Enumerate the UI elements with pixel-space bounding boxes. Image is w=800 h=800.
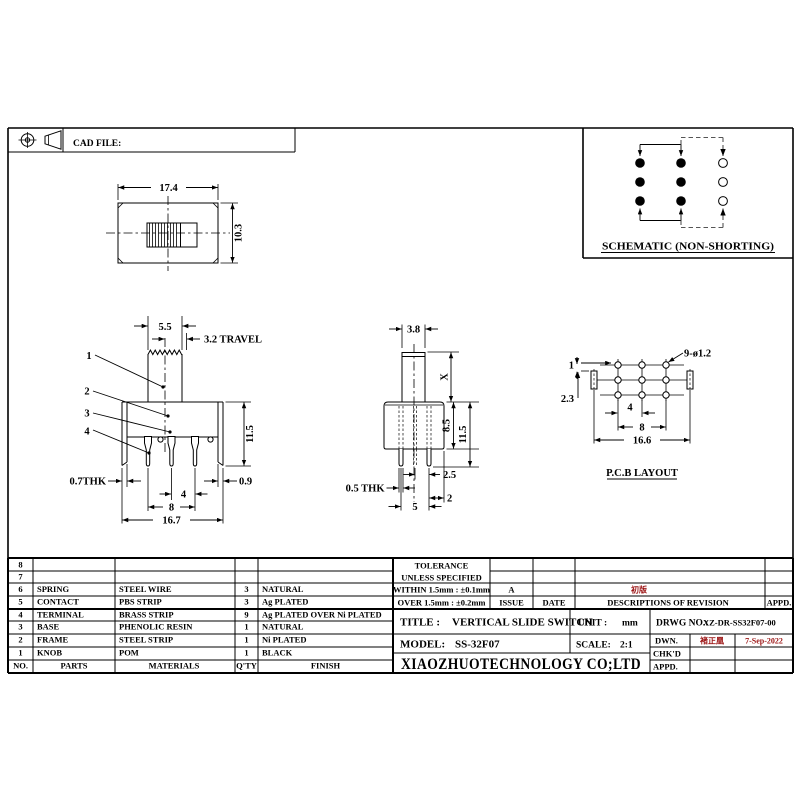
- pin-side: [399, 449, 403, 466]
- dim-knob-width: 5.5: [158, 322, 171, 333]
- col-header-qty: Q'TY: [236, 661, 257, 671]
- tolerance-block: TOLERANCE UNLESS SPECIFIED WITHIN 1.5mm …: [393, 561, 566, 608]
- terminal-pin: [192, 437, 199, 467]
- appd-label: APPD.: [653, 662, 678, 672]
- dim-travel: 3.2 TRAVEL: [204, 335, 262, 346]
- company-name: XIAOZHUOTECHNOLOGY CO;LTD: [401, 656, 641, 673]
- schematic-contacts: [635, 158, 727, 206]
- col-header-materials: MATERIALS: [149, 661, 200, 671]
- knob-side: [402, 352, 425, 402]
- drawing-canvas: CAD FILE: SCHEMATIC (NON-SHORT: [0, 0, 800, 800]
- row-material: BRASS STRIP: [119, 610, 174, 620]
- row-finish: NATURAL: [262, 622, 304, 632]
- issue-label: ISSUE: [499, 598, 524, 608]
- pin-side: [427, 449, 431, 466]
- tolerance-within: WITHIN 1.5mm : ±0.1mm: [393, 585, 490, 595]
- side-view: 3.8 X 8.5 11.5 2.5 0.5 THK 2 5: [346, 324, 479, 513]
- descriptions-of-revision-label: DESCRIPTIONS OF REVISION: [607, 598, 729, 608]
- row-qty: 1: [244, 635, 248, 645]
- dim-pcb-16-6: 16.6: [633, 435, 651, 446]
- model-label: MODEL:: [400, 639, 445, 651]
- row-part: TERMINAL: [37, 610, 84, 620]
- dim-pcb-4: 4: [627, 403, 633, 414]
- tolerance-subtitle: UNLESS SPECIFIED: [401, 573, 482, 583]
- model-value: SS-32F07: [455, 639, 500, 651]
- row-finish: BLACK: [262, 648, 293, 658]
- row-qty: 1: [244, 648, 248, 658]
- row-no: 6: [18, 584, 22, 594]
- row-qty: 1: [244, 622, 248, 632]
- dim-pcb-2-3: 2.3: [561, 394, 574, 405]
- row-material: PBS STRIP: [119, 597, 162, 607]
- dim-knob-height-x: X: [440, 373, 451, 381]
- cad-file-box: CAD FILE:: [8, 128, 295, 152]
- drwg-label: DRWG NO.:: [656, 619, 708, 629]
- third-angle-projection-icon: [19, 131, 62, 149]
- ref-2: 2: [84, 387, 89, 398]
- row-part: KNOB: [37, 648, 62, 658]
- dwn-label: DWN.: [655, 636, 678, 646]
- tolerance-over: OVER 1.5mm : ±0.2mm: [397, 598, 485, 608]
- drwg-value: XZ-DR-SS32F07-00: [703, 618, 776, 628]
- front-view: 5.5 3.2 TRAVEL 1 2 3 4 11.5 0.7THK: [70, 316, 262, 526]
- row-material: STEEL STRIP: [119, 635, 173, 645]
- tolerance-title: TOLERANCE: [415, 561, 469, 571]
- row-no: 8: [18, 560, 22, 570]
- date-label: DATE: [543, 598, 566, 608]
- row-part: SPRING: [37, 584, 70, 594]
- row-material: PHENOLIC RESIN: [119, 622, 193, 632]
- pcb-layout: 9-ø1.2 1 2.3 4 8 16.6 P.C.B LAYOUT: [561, 349, 711, 480]
- cad-file-label: CAD FILE:: [73, 139, 121, 149]
- issue-value: A: [508, 585, 515, 595]
- dim-side-knob: 3.8: [407, 324, 420, 335]
- row-no: 1: [18, 648, 22, 658]
- row-no: 5: [18, 597, 22, 607]
- scale-value: 2:1: [620, 641, 633, 651]
- unit-value: mm: [622, 619, 638, 629]
- parts-table: 8 7 6 SPRING STEEL WIRE 3 NATURAL 5 CONT…: [13, 560, 382, 671]
- row-part: FRAME: [37, 635, 68, 645]
- top-view: 17.4 10.3: [106, 183, 245, 271]
- dim-span: 8: [169, 502, 174, 513]
- ref-4: 4: [84, 427, 90, 438]
- row-finish: Ag PLATED: [262, 597, 308, 607]
- pcb-caption: P.C.B LAYOUT: [606, 468, 678, 479]
- row-finish: Ni PLATED: [262, 635, 306, 645]
- row-finish: NATURAL: [262, 584, 304, 594]
- dim-top-height: 10.3: [234, 224, 245, 242]
- title-label: TITLE :: [400, 617, 440, 629]
- engineering-drawing-sheet: CAD FILE: SCHEMATIC (NON-SHORT: [0, 0, 800, 800]
- dim-pcb-8: 8: [639, 422, 644, 433]
- chkd-label: CHK'D: [653, 649, 681, 659]
- revision-appd-label: APPD.: [767, 598, 792, 608]
- title-value: VERTICAL SLIDE SWITCH: [452, 617, 593, 629]
- dwn-date-stamp: 7-Sep-2022: [745, 637, 783, 646]
- row-no: 7: [18, 572, 23, 582]
- row-part: CONTACT: [37, 597, 79, 607]
- dim-edge: 2: [447, 493, 452, 504]
- switch-body-front: [122, 402, 223, 466]
- dim-offset: 2.5: [443, 470, 456, 481]
- row-finish: Ag PLATED OVER Ni PLATED: [262, 610, 382, 620]
- row-qty: 3: [244, 584, 248, 594]
- row-part: BASE: [37, 622, 60, 632]
- col-header-finish: FINISH: [311, 661, 341, 671]
- row-material: POM: [119, 648, 139, 658]
- dim-pitch: 4: [181, 489, 187, 500]
- row-no: 3: [18, 622, 22, 632]
- row-qty: 3: [244, 597, 248, 607]
- schematic-caption: SCHEMATIC (NON-SHORTING): [602, 242, 775, 253]
- revision-a-description-stamp: 初版: [631, 585, 647, 595]
- unit-label: UNIT :: [578, 619, 607, 629]
- title-block: TITLE : VERTICAL SLIDE SWITCH UNIT : mm …: [400, 617, 783, 674]
- col-header-no: NO.: [13, 661, 28, 671]
- ref-1: 1: [86, 351, 91, 362]
- dim-body-height: 8.5: [442, 419, 453, 432]
- scale-label: SCALE:: [576, 641, 611, 651]
- row-material: STEEL WIRE: [119, 584, 172, 594]
- ref-3: 3: [84, 409, 89, 420]
- dim-top-width: 17.4: [159, 183, 178, 194]
- row-qty: 9: [244, 610, 248, 620]
- slider-knob-top: [147, 223, 197, 247]
- dim-leg: 0.9: [239, 476, 252, 487]
- row-no: 4: [18, 610, 23, 620]
- row-no: 2: [18, 635, 22, 645]
- dwn-signature-stamp: 褚正凰: [699, 636, 724, 646]
- dim-thk: 0.7THK: [70, 476, 107, 487]
- dim-pin-span: 5: [412, 502, 417, 513]
- dim-side-height: 11.5: [458, 426, 469, 444]
- hole-callout: 9-ø1.2: [684, 349, 711, 360]
- dim-front-height: 11.5: [245, 425, 256, 443]
- dim-total-width: 16.7: [162, 515, 180, 526]
- terminal-pin: [168, 437, 175, 467]
- dim-pcb-1: 1: [569, 361, 574, 372]
- dim-side-thk: 0.5 THK: [346, 483, 386, 494]
- col-header-parts: PARTS: [61, 661, 88, 671]
- schematic-panel: SCHEMATIC (NON-SHORTING): [583, 128, 793, 258]
